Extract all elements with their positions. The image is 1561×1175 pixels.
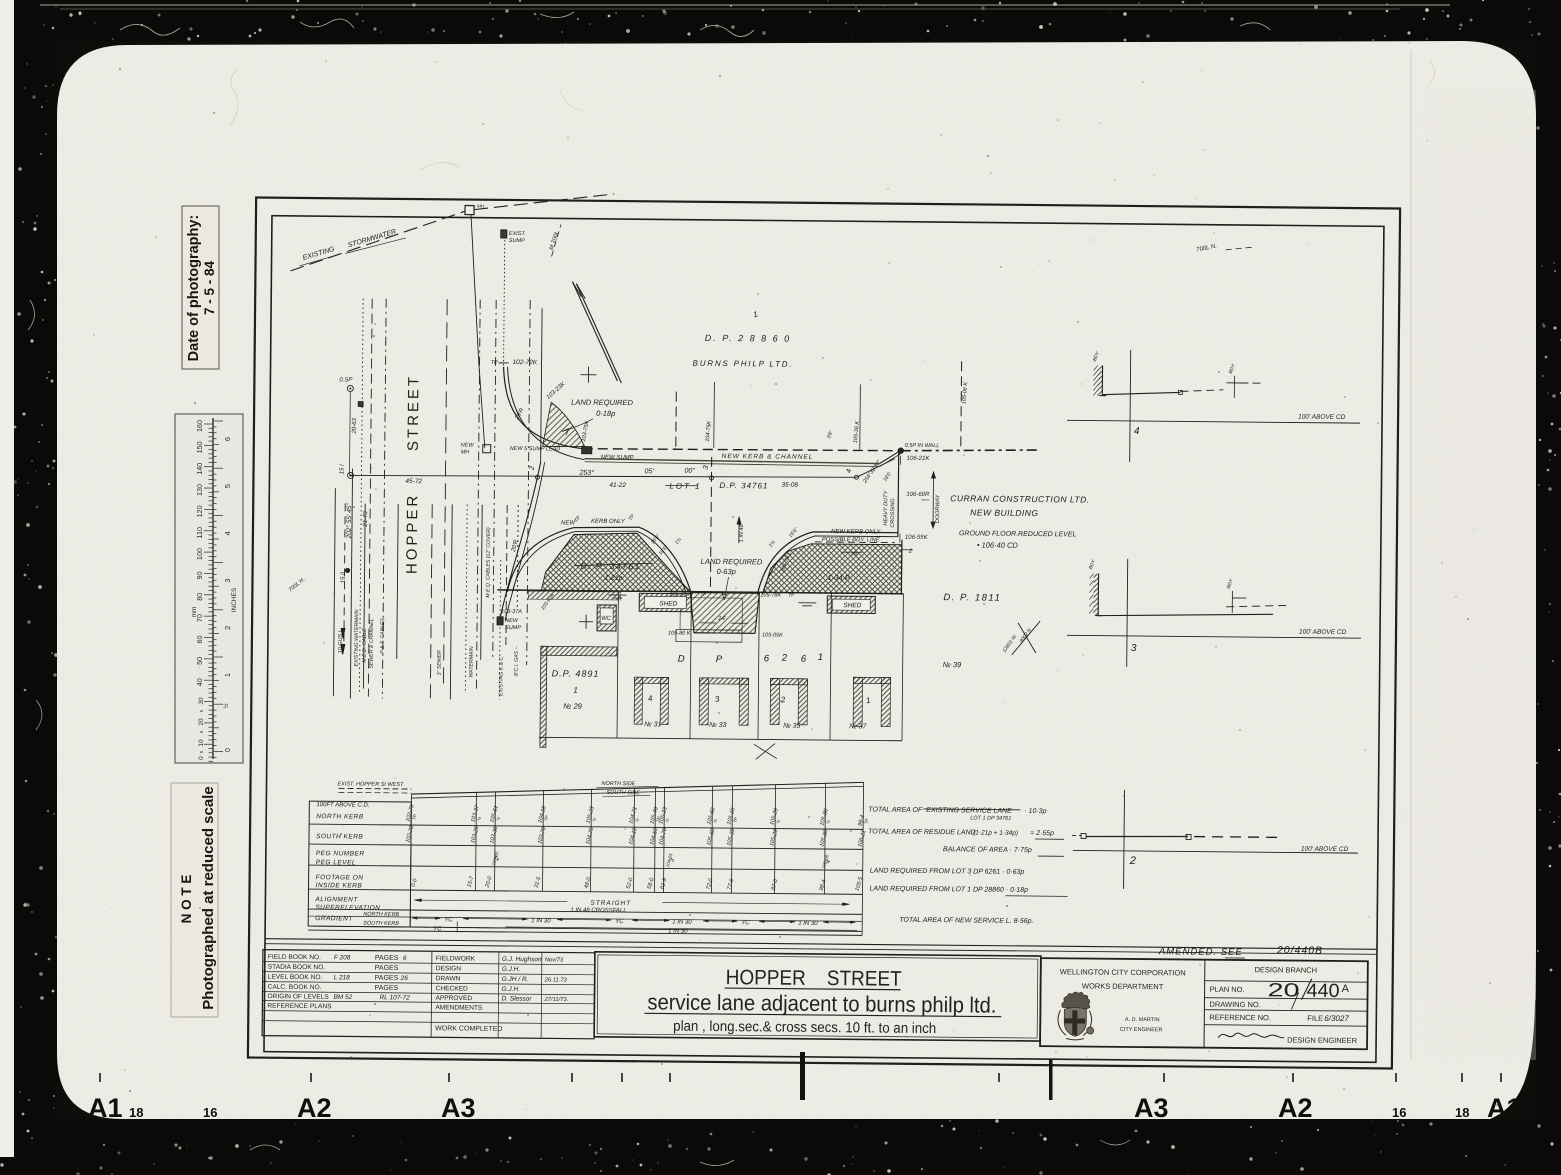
- svg-text:mm: mm: [191, 607, 198, 618]
- svg-text:STREET: STREET: [405, 374, 423, 451]
- svg-text:103-37A: 103-37A: [501, 609, 522, 615]
- svg-text:1: 1: [818, 652, 823, 663]
- svg-text:102-72K: 102-72K: [513, 359, 538, 366]
- svg-text:1 IN 30: 1 IN 30: [798, 921, 818, 927]
- svg-text:NEW KERB & CHANNEL: NEW KERB & CHANNEL: [722, 453, 814, 461]
- svg-text:3: 3: [1131, 643, 1137, 654]
- svg-text:3” SEWER: 3” SEWER: [437, 650, 443, 675]
- svg-text:ORIGIN OF LEVELS: ORIGIN OF LEVELS: [267, 993, 329, 1001]
- svg-text:6/3027: 6/3027: [1324, 1014, 1349, 1023]
- svg-text:16: 16: [1392, 1105, 1406, 1120]
- svg-text:21-73: 21-73: [363, 511, 369, 528]
- svg-text:LAND REQUIRED: LAND REQUIRED: [701, 557, 763, 567]
- svg-text:110: 110: [195, 527, 204, 538]
- svg-text:106-21K: 106-21K: [907, 456, 931, 462]
- svg-text:PAGES: PAGES: [375, 955, 399, 962]
- svg-text:LOT 1 DP 34761: LOT 1 DP 34761: [970, 815, 1011, 821]
- svg-text:NORTH SIDE: NORTH SIDE: [602, 781, 636, 787]
- svg-text:120: 120: [195, 505, 204, 517]
- svg-text:DOORWAY: DOORWAY: [935, 494, 941, 523]
- svg-text:DESIGN ENGINEER: DESIGN ENGINEER: [1287, 1035, 1358, 1045]
- svg-text:G.JH / R.: G.JH / R.: [502, 976, 529, 983]
- svg-text:15 I: 15 I: [340, 464, 346, 474]
- svg-text:LEVEL BOOK NO.: LEVEL BOOK NO.: [268, 974, 323, 982]
- svg-text:YC: YC: [741, 920, 750, 926]
- svg-text:PLAN NO.: PLAN NO.: [1210, 985, 1245, 994]
- svg-text:130: 130: [195, 484, 204, 496]
- svg-text:LAND REQUIRED: LAND REQUIRED: [571, 398, 633, 408]
- svg-text:NEW: NEW: [461, 443, 475, 449]
- svg-text:80: 80: [195, 593, 204, 601]
- svg-text:F 208: F 208: [334, 954, 351, 961]
- svg-text:YC: YC: [444, 917, 453, 923]
- svg-text:INSIDE KERB: INSIDE KERB: [316, 882, 363, 889]
- svg-text:M.E.D. CABLE: M.E.D. CABLE: [362, 628, 368, 663]
- svg-text:Date of photography:: Date of photography:: [186, 215, 202, 362]
- svg-text:INCHES: INCHES: [231, 587, 238, 612]
- svg-text:№ 39: № 39: [943, 660, 962, 669]
- svg-text:3: 3: [223, 579, 232, 583]
- svg-text:100' ABOVE CD: 100' ABOVE CD: [1299, 629, 1347, 636]
- svg-text:1 IN 48: 1 IN 48: [739, 524, 745, 543]
- svg-text:100' ABOVE CD: 100' ABOVE CD: [1298, 414, 1346, 421]
- svg-text:L 218: L 218: [334, 974, 351, 981]
- svg-text:150: 150: [195, 441, 204, 453]
- svg-text:PEG LEVEL: PEG LEVEL: [316, 859, 356, 866]
- svg-text:D. P. 34761: D. P. 34761: [581, 561, 641, 572]
- svg-text:0.5P IN WALL: 0.5P IN WALL: [905, 443, 940, 449]
- svg-text:GROUND FLOOR REDUCED LEVEL: GROUND FLOOR REDUCED LEVEL: [959, 530, 1077, 538]
- svg-text:105-86 K: 105-86 K: [668, 631, 691, 637]
- svg-text:6: 6: [764, 653, 770, 664]
- svg-text:A2: A2: [297, 1093, 332, 1123]
- svg-text:HOPPER STREET: HOPPER STREET: [726, 966, 902, 991]
- svg-text:NEW: NEW: [505, 618, 519, 624]
- svg-text:BM 52: BM 52: [333, 994, 352, 1001]
- svg-text:D.P. 4891: D.P. 4891: [552, 668, 600, 678]
- svg-text:202° 55' 45”: 202° 55' 45”: [345, 503, 353, 540]
- svg-text:PAGES: PAGES: [375, 985, 399, 992]
- svg-text:8”C.I. GAS --: 8”C.I. GAS --: [514, 646, 520, 676]
- svg-text:106-60R: 106-60R: [906, 492, 930, 498]
- svg-text:REFERENCE PLANS: REFERENCE PLANS: [267, 1003, 332, 1011]
- svg-text:½: ½: [223, 703, 230, 708]
- svg-text:A2: A2: [1278, 1093, 1313, 1123]
- svg-text:14': 14': [718, 616, 727, 622]
- svg-text:90: 90: [195, 571, 204, 579]
- svg-text:105-05K: 105-05K: [762, 632, 783, 638]
- svg-text:MH: MH: [477, 204, 485, 209]
- svg-text:SEWER & CHANNEL: SEWER & CHANNEL: [369, 618, 375, 668]
- svg-text:5: 5: [223, 484, 232, 488]
- svg-text:WORK COMPLETED: WORK COMPLETED: [435, 1025, 502, 1033]
- svg-text:7 - 5 - 84: 7 - 5 - 84: [202, 260, 217, 315]
- svg-text:FOOTAGE ON: FOOTAGE ON: [316, 874, 364, 881]
- svg-text:05': 05': [645, 468, 655, 475]
- svg-text:15 II: 15 II: [340, 571, 346, 583]
- svg-text:M.E.Q. CABLES (12” COVER): M.E.Q. CABLES (12” COVER): [485, 527, 492, 598]
- svg-text:· 10·3p: · 10·3p: [1024, 808, 1046, 815]
- svg-text:ALIGNMENT: ALIGNMENT: [314, 896, 358, 903]
- svg-text:= 2·55p: = 2·55p: [1030, 830, 1054, 837]
- svg-text:TOTAL AREA OF RESIDUE LAND: TOTAL AREA OF RESIDUE LAND: [868, 828, 976, 836]
- svg-text:HEAVY DUTY: HEAVY DUTY: [883, 490, 889, 525]
- svg-text:№ 35: № 35: [783, 723, 800, 730]
- svg-text:20-63: 20-63: [352, 417, 358, 434]
- svg-text:STRAIGHT: STRAIGHT: [590, 900, 631, 907]
- svg-text:105-78K: 105-78K: [760, 592, 781, 598]
- svg-text:G.J.H.: G.J.H.: [502, 986, 521, 993]
- svg-text:D: D: [678, 654, 685, 665]
- svg-text:2: 2: [1129, 855, 1136, 867]
- svg-text:0: 0: [198, 756, 205, 760]
- svg-text:N O T E: N O T E: [179, 875, 194, 924]
- svg-text:CALC. BOOK NO.: CALC. BOOK NO.: [268, 984, 322, 992]
- svg-text:EXIST. HOPPER St WEST: EXIST. HOPPER St WEST: [337, 781, 404, 788]
- svg-text:50: 50: [195, 657, 204, 665]
- svg-text:16: 16: [203, 1105, 217, 1120]
- svg-text:A1: A1: [88, 1093, 123, 1123]
- svg-text:PAGES: PAGES: [375, 975, 399, 982]
- svg-text:2: 2: [781, 653, 788, 664]
- svg-text:NEW BUILDING: NEW BUILDING: [970, 507, 1038, 518]
- svg-text:WATERMAIN: WATERMAIN: [469, 646, 475, 678]
- svg-text:35-08: 35-08: [781, 482, 798, 489]
- svg-text:D. P. 1811: D. P. 1811: [943, 592, 1001, 604]
- svg-text:FIELD BOOK NO.: FIELD BOOK NO.: [268, 954, 321, 962]
- svg-text:A3: A3: [441, 1093, 476, 1123]
- svg-text:NEW: NEW: [561, 520, 576, 526]
- svg-text:CROSSING: CROSSING: [890, 498, 896, 528]
- svg-text:26: 26: [400, 975, 409, 982]
- svg-text:4: 4: [223, 531, 232, 535]
- svg-text:SUPERELEVATION: SUPERELEVATION: [315, 904, 380, 912]
- svg-text:№ 29: № 29: [563, 702, 582, 711]
- svg-text:30: 30: [198, 697, 205, 705]
- svg-text:A: A: [1342, 983, 1350, 995]
- svg-text:KERB ONLY: KERB ONLY: [591, 519, 626, 525]
- svg-text:№ 37: № 37: [849, 723, 867, 730]
- svg-text:100' ABOVE CD: 100' ABOVE CD: [1301, 846, 1349, 853]
- svg-text:HOPPER: HOPPER: [404, 493, 422, 575]
- svg-text:EXISTING WATERMAIN: EXISTING WATERMAIN: [354, 609, 361, 666]
- svg-text:60: 60: [195, 636, 204, 644]
- svg-text:APPROVED: APPROVED: [435, 995, 472, 1002]
- svg-text:40: 40: [195, 678, 204, 686]
- svg-text:4: 4: [1134, 426, 1140, 437]
- svg-text:YC: YC: [433, 926, 442, 932]
- svg-text:27/11/73.: 27/11/73.: [543, 997, 568, 1003]
- svg-text:P: P: [716, 654, 723, 665]
- svg-text:FIELDWORK: FIELDWORK: [436, 955, 476, 962]
- svg-text:Nov/73: Nov/73: [545, 957, 564, 963]
- svg-text:00”: 00”: [685, 468, 696, 475]
- svg-text:1-21p: 1-21p: [604, 575, 622, 582]
- svg-text:SOUTH KERB: SOUTH KERB: [316, 833, 363, 840]
- svg-text:G.J.H.: G.J.H.: [502, 966, 521, 973]
- svg-text:TOTAL AREA OF: TOTAL AREA OF: [868, 806, 923, 814]
- svg-text:140: 140: [195, 463, 204, 475]
- svg-text:BALANCE OF AREA · 7·75p: BALANCE OF AREA · 7·75p: [943, 846, 1032, 854]
- svg-text:PAGES: PAGES: [375, 965, 399, 972]
- svg-text:EXIST.: EXIST.: [509, 231, 526, 237]
- svg-text:• 106·40 CD: • 106·40 CD: [977, 540, 1019, 549]
- svg-text:10 GUS I: 10 GUS I: [338, 630, 344, 653]
- svg-text:EXISTING K.& C.: EXISTING K.& C.: [498, 655, 504, 696]
- svg-text:EXISTING SERVICE LANE: EXISTING SERVICE LANE: [926, 807, 1012, 815]
- svg-text:POSSIBLE BDY. LINE: POSSIBLE BDY. LINE: [822, 537, 880, 544]
- svg-text:MH: MH: [461, 450, 470, 456]
- svg-text:SUMP: SUMP: [509, 238, 525, 244]
- svg-text:NORTH KERB: NORTH KERB: [316, 813, 364, 820]
- svg-text:RL 107-72: RL 107-72: [379, 994, 410, 1001]
- svg-text:20: 20: [198, 718, 205, 726]
- svg-text:1 IN 48 CROSSFALL: 1 IN 48 CROSSFALL: [570, 908, 626, 915]
- svg-text:SOUTH KERB: SOUTH KERB: [363, 921, 399, 927]
- svg-text:YC: YC: [615, 919, 624, 925]
- svg-text:1 IN 30: 1 IN 30: [531, 918, 551, 924]
- svg-text:WORKS DEPARTMENT: WORKS DEPARTMENT: [1082, 981, 1164, 991]
- svg-text:18: 18: [1455, 1105, 1469, 1120]
- svg-text:DRAWN: DRAWN: [436, 975, 461, 982]
- svg-text:P & T. CABLES: P & T. CABLES: [380, 618, 386, 654]
- svg-text:20/440B: 20/440B: [1276, 944, 1323, 956]
- svg-text:CURRAN CONSTRUCTION LTD.: CURRAN CONSTRUCTION LTD.: [950, 493, 1089, 504]
- svg-text:PEG NUMBER: PEG NUMBER: [316, 850, 365, 857]
- svg-text:LAND REQUIRED FROM LOT 3 D: LAND REQUIRED FROM LOT 3 DP 6261 · 0·63p: [870, 867, 1025, 875]
- svg-text:6: 6: [223, 437, 232, 441]
- svg-text:NORTH KERB: NORTH KERB: [363, 912, 399, 918]
- svg-text:TP: TP: [788, 593, 794, 598]
- svg-text:100: 100: [195, 548, 204, 560]
- svg-text:SHED: SHED: [843, 602, 861, 609]
- svg-text:10: 10: [198, 739, 205, 747]
- svg-text:SUMP: SUMP: [505, 625, 521, 631]
- svg-text:0: 0: [225, 748, 232, 752]
- svg-text:253°: 253°: [578, 469, 594, 477]
- svg-text:0-18p: 0-18p: [596, 409, 615, 418]
- svg-text:0.SP: 0.SP: [339, 377, 352, 383]
- svg-text:DRAWING NO.: DRAWING NO.: [1209, 1000, 1260, 1009]
- svg-text:NEW 5 SUMP LEAD: NEW 5 SUMP LEAD: [510, 446, 561, 452]
- svg-text:26.11.73: 26.11.73: [544, 977, 568, 983]
- svg-text:1: 1: [223, 673, 232, 677]
- svg-text:SHED: SHED: [659, 600, 677, 607]
- svg-text:0-63p: 0-63p: [717, 567, 736, 576]
- svg-text:160: 160: [195, 420, 204, 432]
- svg-text:WC: WC: [601, 616, 612, 622]
- svg-text:41-22: 41-22: [609, 482, 626, 489]
- svg-text:FILE: FILE: [1307, 1014, 1323, 1023]
- svg-text:G.J. Hughson: G.J. Hughson: [502, 956, 542, 963]
- svg-text:45-72: 45-72: [405, 478, 422, 485]
- svg-text:№ 33: № 33: [709, 722, 726, 729]
- svg-text:20: 20: [1267, 980, 1299, 1001]
- svg-text:TP: TP: [491, 360, 498, 366]
- svg-text:1: 1: [573, 686, 578, 695]
- svg-text:18: 18: [129, 1105, 143, 1120]
- svg-text:plan , long.sec.& cross secs.: plan , long.sec.& cross secs. 10 ft. to …: [673, 1019, 936, 1038]
- svg-text:DESIGN BRANCH: DESIGN BRANCH: [1254, 965, 1317, 975]
- svg-text:D. Slessor: D. Slessor: [501, 995, 532, 1002]
- svg-text:1 IN 30: 1 IN 30: [672, 920, 692, 926]
- svg-text:6: 6: [801, 654, 807, 665]
- svg-text:6: 6: [403, 955, 407, 962]
- svg-text:2: 2: [223, 626, 232, 630]
- svg-text:D. P. 2 8 8 6 0: D. P. 2 8 8 6 0: [705, 333, 791, 344]
- svg-text:(1·21p + 1·34p): (1·21p + 1·34p): [973, 829, 1018, 836]
- svg-text:440: 440: [1306, 981, 1339, 1002]
- svg-text:106-55K: 106-55K: [905, 535, 929, 541]
- svg-text:CITY ENGINEER: CITY ENGINEER: [1120, 1027, 1163, 1033]
- svg-text:DESIGN: DESIGN: [436, 965, 462, 972]
- svg-text:AMENDMENTS: AMENDMENTS: [435, 1004, 483, 1011]
- svg-text:№ 31: № 31: [644, 721, 661, 728]
- svg-text:TP: TP: [700, 592, 706, 597]
- svg-text:STADIA BOOK NO.: STADIA BOOK NO.: [268, 964, 326, 972]
- svg-text:WELLINGTON CITY CORPORATION: WELLINGTON CITY CORPORATION: [1060, 967, 1186, 977]
- svg-text:BURNS PHILP LTD.: BURNS PHILP LTD.: [693, 359, 794, 369]
- svg-text:TOTAL AREA OF NEW SERVICE L: TOTAL AREA OF NEW SERVICE L. 8·56p.: [899, 917, 1033, 925]
- svg-text:D.P. 34761: D.P. 34761: [719, 481, 768, 490]
- svg-text:Photographed at reduced scale: Photographed at reduced scale: [200, 786, 217, 1009]
- svg-text:NEW SUMP: NEW SUMP: [601, 455, 634, 461]
- svg-text:1 IN 30: 1 IN 30: [668, 929, 688, 935]
- svg-text:GRADIENT: GRADIENT: [315, 915, 353, 922]
- svg-text:SOUTH SIDE: SOUTH SIDE: [606, 790, 640, 796]
- svg-text:A. D. MARTIN: A. D. MARTIN: [1125, 1017, 1160, 1023]
- svg-text:100FT ABOVE C.D.: 100FT ABOVE C.D.: [316, 802, 369, 809]
- svg-text:REFERENCE NO.: REFERENCE NO.: [1209, 1013, 1271, 1023]
- svg-text:A3: A3: [1134, 1093, 1169, 1123]
- svg-text:1-34 P: 1-34 P: [827, 573, 849, 582]
- svg-text:A1: A1: [1487, 1093, 1522, 1123]
- svg-text:CHECKED: CHECKED: [436, 985, 469, 992]
